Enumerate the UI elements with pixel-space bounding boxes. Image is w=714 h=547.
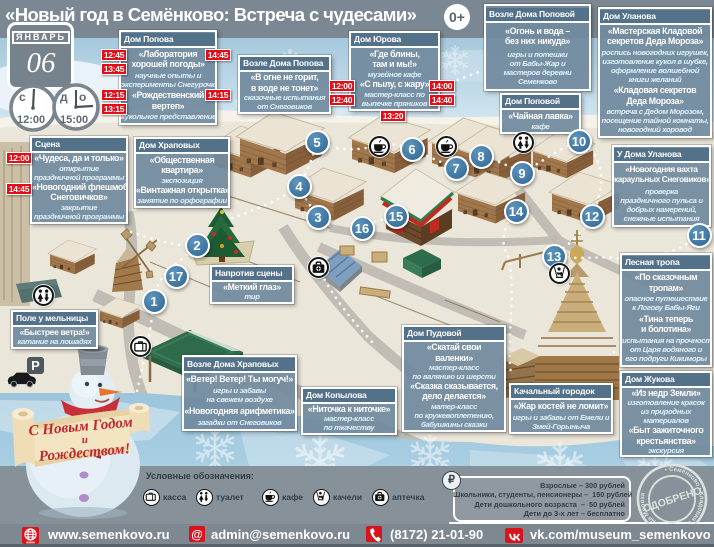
svg-text:с: с	[19, 90, 26, 104]
svg-text:д: д	[60, 90, 68, 104]
svg-text:о: о	[79, 90, 86, 104]
svg-text:12:00: 12:00	[17, 114, 45, 126]
svg-text:www: www	[25, 540, 35, 544]
svg-text:15:00: 15:00	[60, 114, 88, 126]
svg-text:@: @	[191, 528, 202, 541]
